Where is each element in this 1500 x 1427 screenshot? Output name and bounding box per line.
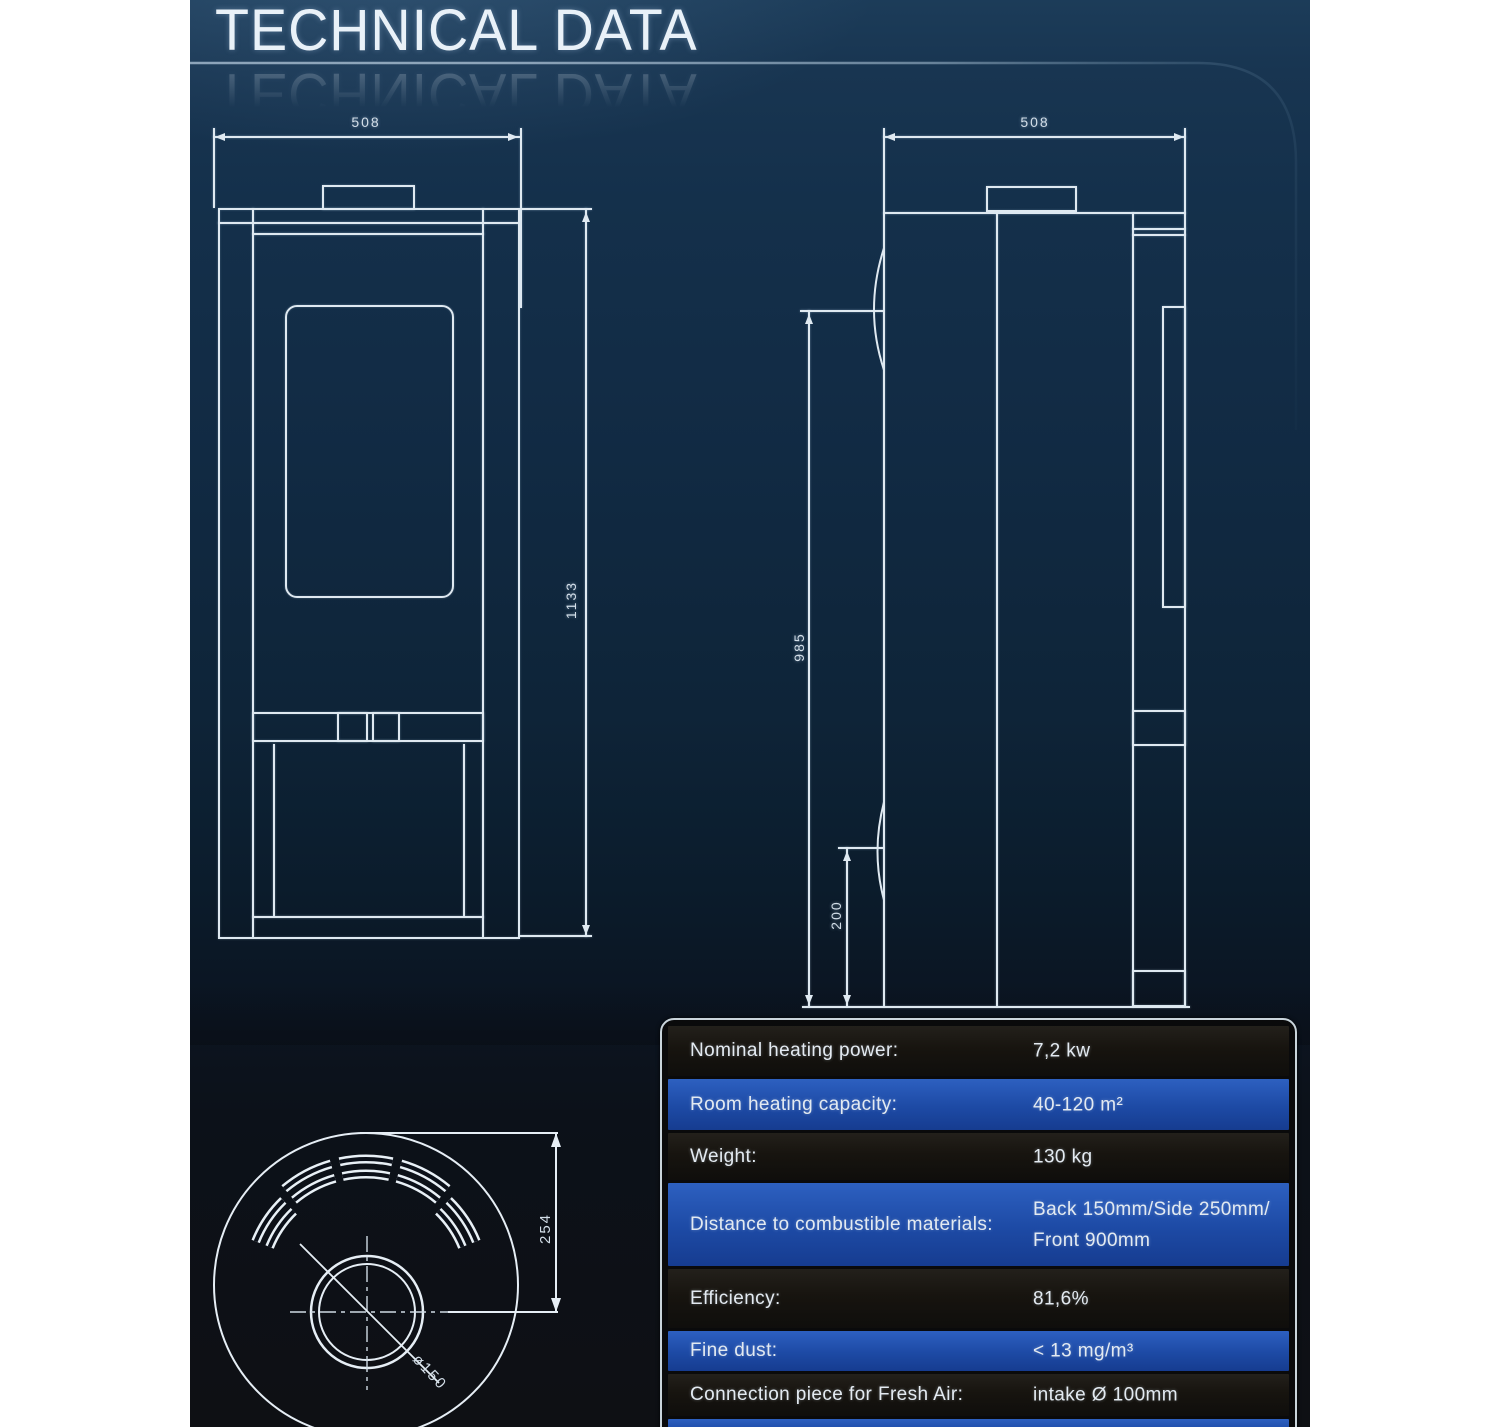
side-band-section <box>1132 710 1186 746</box>
spec-value: Back 150mm/Side 250mm/ Front 900mm <box>1033 1194 1270 1256</box>
spec-label: Distance to combustible materials: <box>690 1214 993 1236</box>
spec-value: 130 kg <box>1033 1141 1092 1172</box>
front-flue-collar <box>322 185 415 210</box>
dim-arrow-up <box>843 851 851 861</box>
side-rear-line-1 <box>1132 228 1186 230</box>
page-title: TECHNICAL DATA <box>215 2 698 60</box>
table-row-partial <box>668 1419 1289 1427</box>
side-rear-line-2 <box>1132 234 1186 236</box>
spec-value-line1: Back 150mm/Side 250mm/ <box>1033 1194 1270 1225</box>
spec-label: Room heating capacity: <box>690 1094 897 1116</box>
front-width-label: 508 <box>266 114 466 130</box>
top-view-drawing: 254 ø150 <box>190 1120 580 1427</box>
table-row: Connection piece for Fresh Air: intake Ø… <box>668 1374 1289 1416</box>
spec-value: 7,2 kw <box>1033 1036 1090 1067</box>
front-control-cell-1 <box>337 712 368 742</box>
front-control-cell-2 <box>372 712 400 742</box>
front-storage-left-line <box>273 744 275 916</box>
side-ext-line-left <box>883 128 885 212</box>
front-height-label: 1133 <box>563 560 579 640</box>
spec-label: Weight: <box>690 1146 757 1168</box>
dim-arrow-down <box>582 925 590 935</box>
front-top-plate-line <box>218 222 520 224</box>
spec-label: Fine dust: <box>690 1340 777 1362</box>
side-height-ext-top <box>800 310 884 312</box>
spec-label: Efficiency: <box>690 1288 781 1310</box>
side-top-line <box>883 212 1186 214</box>
side-height-label: 985 <box>791 609 807 685</box>
front-height-ext-top <box>520 208 592 210</box>
top-offset-label: 254 <box>537 1213 554 1244</box>
spec-value: < 13 mg/m³ <box>1033 1336 1134 1367</box>
spec-value-line2: Front 900mm <box>1033 1225 1270 1256</box>
side-flue-collar <box>986 186 1077 212</box>
front-ext-line-left <box>213 128 215 208</box>
table-row: Fine dust: < 13 mg/m³ <box>668 1331 1289 1371</box>
front-control-band <box>252 712 484 742</box>
spec-label: Connection piece for Fresh Air: <box>690 1384 963 1406</box>
front-width-dim-line <box>213 136 520 138</box>
side-ext-line-right <box>1184 128 1186 212</box>
front-storage-right-line <box>463 744 465 916</box>
side-door-curves <box>860 240 900 920</box>
spec-label: Nominal heating power: <box>690 1040 898 1062</box>
dim-arrow-up <box>582 212 590 222</box>
front-height-ext-bottom <box>520 935 592 937</box>
side-baseline <box>802 1006 1190 1008</box>
spec-value: 81,6% <box>1033 1283 1089 1314</box>
spec-value: 40-120 m² <box>1033 1089 1123 1120</box>
dim-arrow-up <box>805 314 813 324</box>
front-window-glass <box>285 305 454 598</box>
front-side-panel-right <box>482 208 484 937</box>
dim-arrow-down <box>551 1298 561 1312</box>
front-ext-line-right <box>520 128 522 308</box>
side-foot-section <box>1132 970 1186 1007</box>
front-height-dim-line <box>585 208 587 937</box>
side-door-edge <box>996 212 998 1007</box>
side-height-dim-line <box>808 310 810 1007</box>
side-base-ext-top <box>838 847 884 849</box>
spec-value: intake Ø 100mm <box>1033 1380 1178 1411</box>
dim-arrow-right <box>508 133 518 141</box>
side-base-height-label: 200 <box>828 877 844 953</box>
dim-arrow-down <box>805 995 813 1005</box>
table-row: Room heating capacity: 40-120 m² <box>668 1079 1289 1130</box>
dim-arrow-left <box>215 133 225 141</box>
table-row: Nominal heating power: 7,2 kw <box>668 1026 1289 1076</box>
table-row: Efficiency: 81,6% <box>668 1269 1289 1328</box>
front-door-top-line <box>252 233 484 235</box>
dim-arrow-down <box>843 995 851 1005</box>
front-plinth-line <box>252 916 484 918</box>
side-width-label: 508 <box>935 114 1135 130</box>
dim-arrow-up <box>551 1133 561 1147</box>
side-base-dim-line <box>846 847 848 1007</box>
table-row: Distance to combustible materials: Back … <box>668 1183 1289 1266</box>
side-rear-recess <box>1162 306 1186 608</box>
datasheet-page: TECHNICAL DATA TECHNICAL DATA 508 <box>0 0 1500 1427</box>
table-row: Weight: 130 kg <box>668 1133 1289 1180</box>
front-side-panel-left <box>252 208 254 937</box>
spec-table: Nominal heating power: 7,2 kw Room heati… <box>660 1018 1297 1427</box>
side-back-panel-line <box>1132 212 1134 1007</box>
dim-arrow-left <box>885 133 895 141</box>
side-width-dim-line <box>883 136 1186 138</box>
flue-diameter-label: ø150 <box>409 1351 450 1393</box>
content-panel: TECHNICAL DATA TECHNICAL DATA 508 <box>190 0 1310 1427</box>
dim-arrow-right <box>1174 133 1184 141</box>
vent-slots <box>256 1159 477 1247</box>
header: TECHNICAL DATA TECHNICAL DATA <box>215 2 718 60</box>
